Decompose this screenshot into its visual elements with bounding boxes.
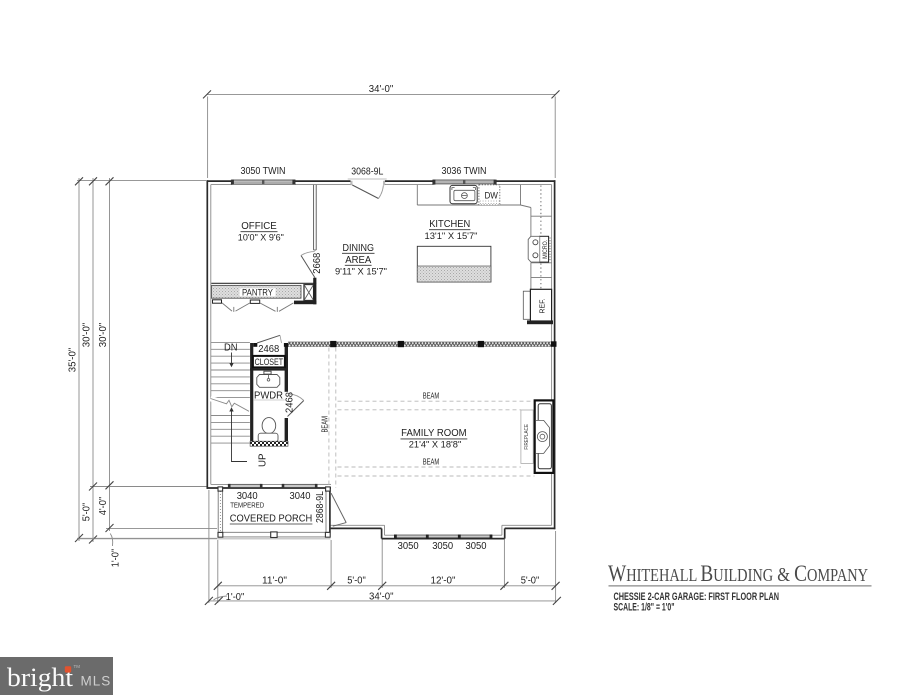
- svg-text:3050: 3050: [398, 541, 419, 552]
- svg-text:11'-0": 11'-0": [262, 576, 287, 587]
- svg-text:30'-0": 30'-0": [98, 322, 109, 347]
- svg-text:34'-0": 34'-0": [369, 592, 394, 603]
- svg-text:REF.: REF.: [540, 298, 547, 313]
- svg-text:3040: 3040: [290, 491, 311, 502]
- svg-text:3050 TWIN: 3050 TWIN: [241, 166, 286, 177]
- svg-text:3036 TWIN: 3036 TWIN: [442, 166, 487, 177]
- svg-text:COVERED PORCH: COVERED PORCH: [230, 513, 312, 524]
- svg-text:TM: TM: [74, 664, 81, 669]
- svg-text:10'0" X 9'6": 10'0" X 9'6": [238, 233, 284, 244]
- svg-text:BEAM: BEAM: [423, 457, 440, 466]
- svg-text:5'-0": 5'-0": [347, 576, 366, 587]
- svg-text:2468: 2468: [285, 392, 296, 413]
- svg-text:35'-0": 35'-0": [68, 347, 79, 372]
- svg-text:34'-0": 34'-0": [369, 84, 394, 95]
- svg-text:MLS: MLS: [81, 674, 112, 689]
- svg-text:13'1" X 15'7": 13'1" X 15'7": [425, 231, 478, 242]
- svg-text:2868-9L: 2868-9L: [315, 491, 326, 523]
- svg-text:DN: DN: [224, 343, 238, 354]
- svg-text:WHITEHALL BUILDING & COMPANY: WHITEHALL BUILDING & COMPANY: [608, 561, 868, 587]
- svg-text:TEMPERED: TEMPERED: [230, 500, 264, 509]
- svg-text:AREA: AREA: [345, 255, 371, 266]
- svg-text:MICRO.: MICRO.: [542, 240, 549, 259]
- svg-text:3050: 3050: [432, 541, 453, 552]
- svg-text:BEAM: BEAM: [423, 392, 440, 401]
- svg-text:2468: 2468: [258, 344, 279, 355]
- svg-text:PANTRY: PANTRY: [242, 287, 273, 297]
- svg-text:FIREPLACE: FIREPLACE: [524, 424, 530, 450]
- svg-text:4'-0": 4'-0": [98, 496, 109, 515]
- svg-text:5'-0": 5'-0": [521, 576, 540, 587]
- svg-text:bright: bright: [7, 663, 74, 692]
- svg-text:3050: 3050: [466, 541, 487, 552]
- svg-text:KITCHEN: KITCHEN: [429, 219, 470, 230]
- svg-text:DW: DW: [484, 191, 498, 201]
- svg-text:30'-0": 30'-0": [82, 322, 93, 347]
- svg-text:1'-0": 1'-0": [226, 592, 245, 603]
- svg-text:OFFICE: OFFICE: [241, 221, 277, 232]
- svg-text:1'-0": 1'-0": [110, 548, 121, 567]
- svg-text:2668: 2668: [312, 252, 323, 273]
- svg-text:SCALE: 1/8" = 1'0": SCALE: 1/8" = 1'0": [614, 602, 675, 614]
- svg-text:21'4" X 18'8": 21'4" X 18'8": [409, 439, 462, 450]
- svg-text:9'11" X 15'7": 9'11" X 15'7": [335, 267, 387, 278]
- svg-text:5'-0": 5'-0": [82, 502, 93, 521]
- svg-text:DINING: DINING: [343, 243, 375, 254]
- svg-text:FAMILY ROOM: FAMILY ROOM: [401, 428, 467, 439]
- svg-text:12'-0": 12'-0": [431, 576, 456, 587]
- svg-text:3068-9L: 3068-9L: [351, 166, 383, 177]
- svg-text:UP: UP: [258, 453, 269, 467]
- svg-text:CLOSET: CLOSET: [255, 357, 284, 368]
- svg-text:BEAM: BEAM: [321, 416, 330, 433]
